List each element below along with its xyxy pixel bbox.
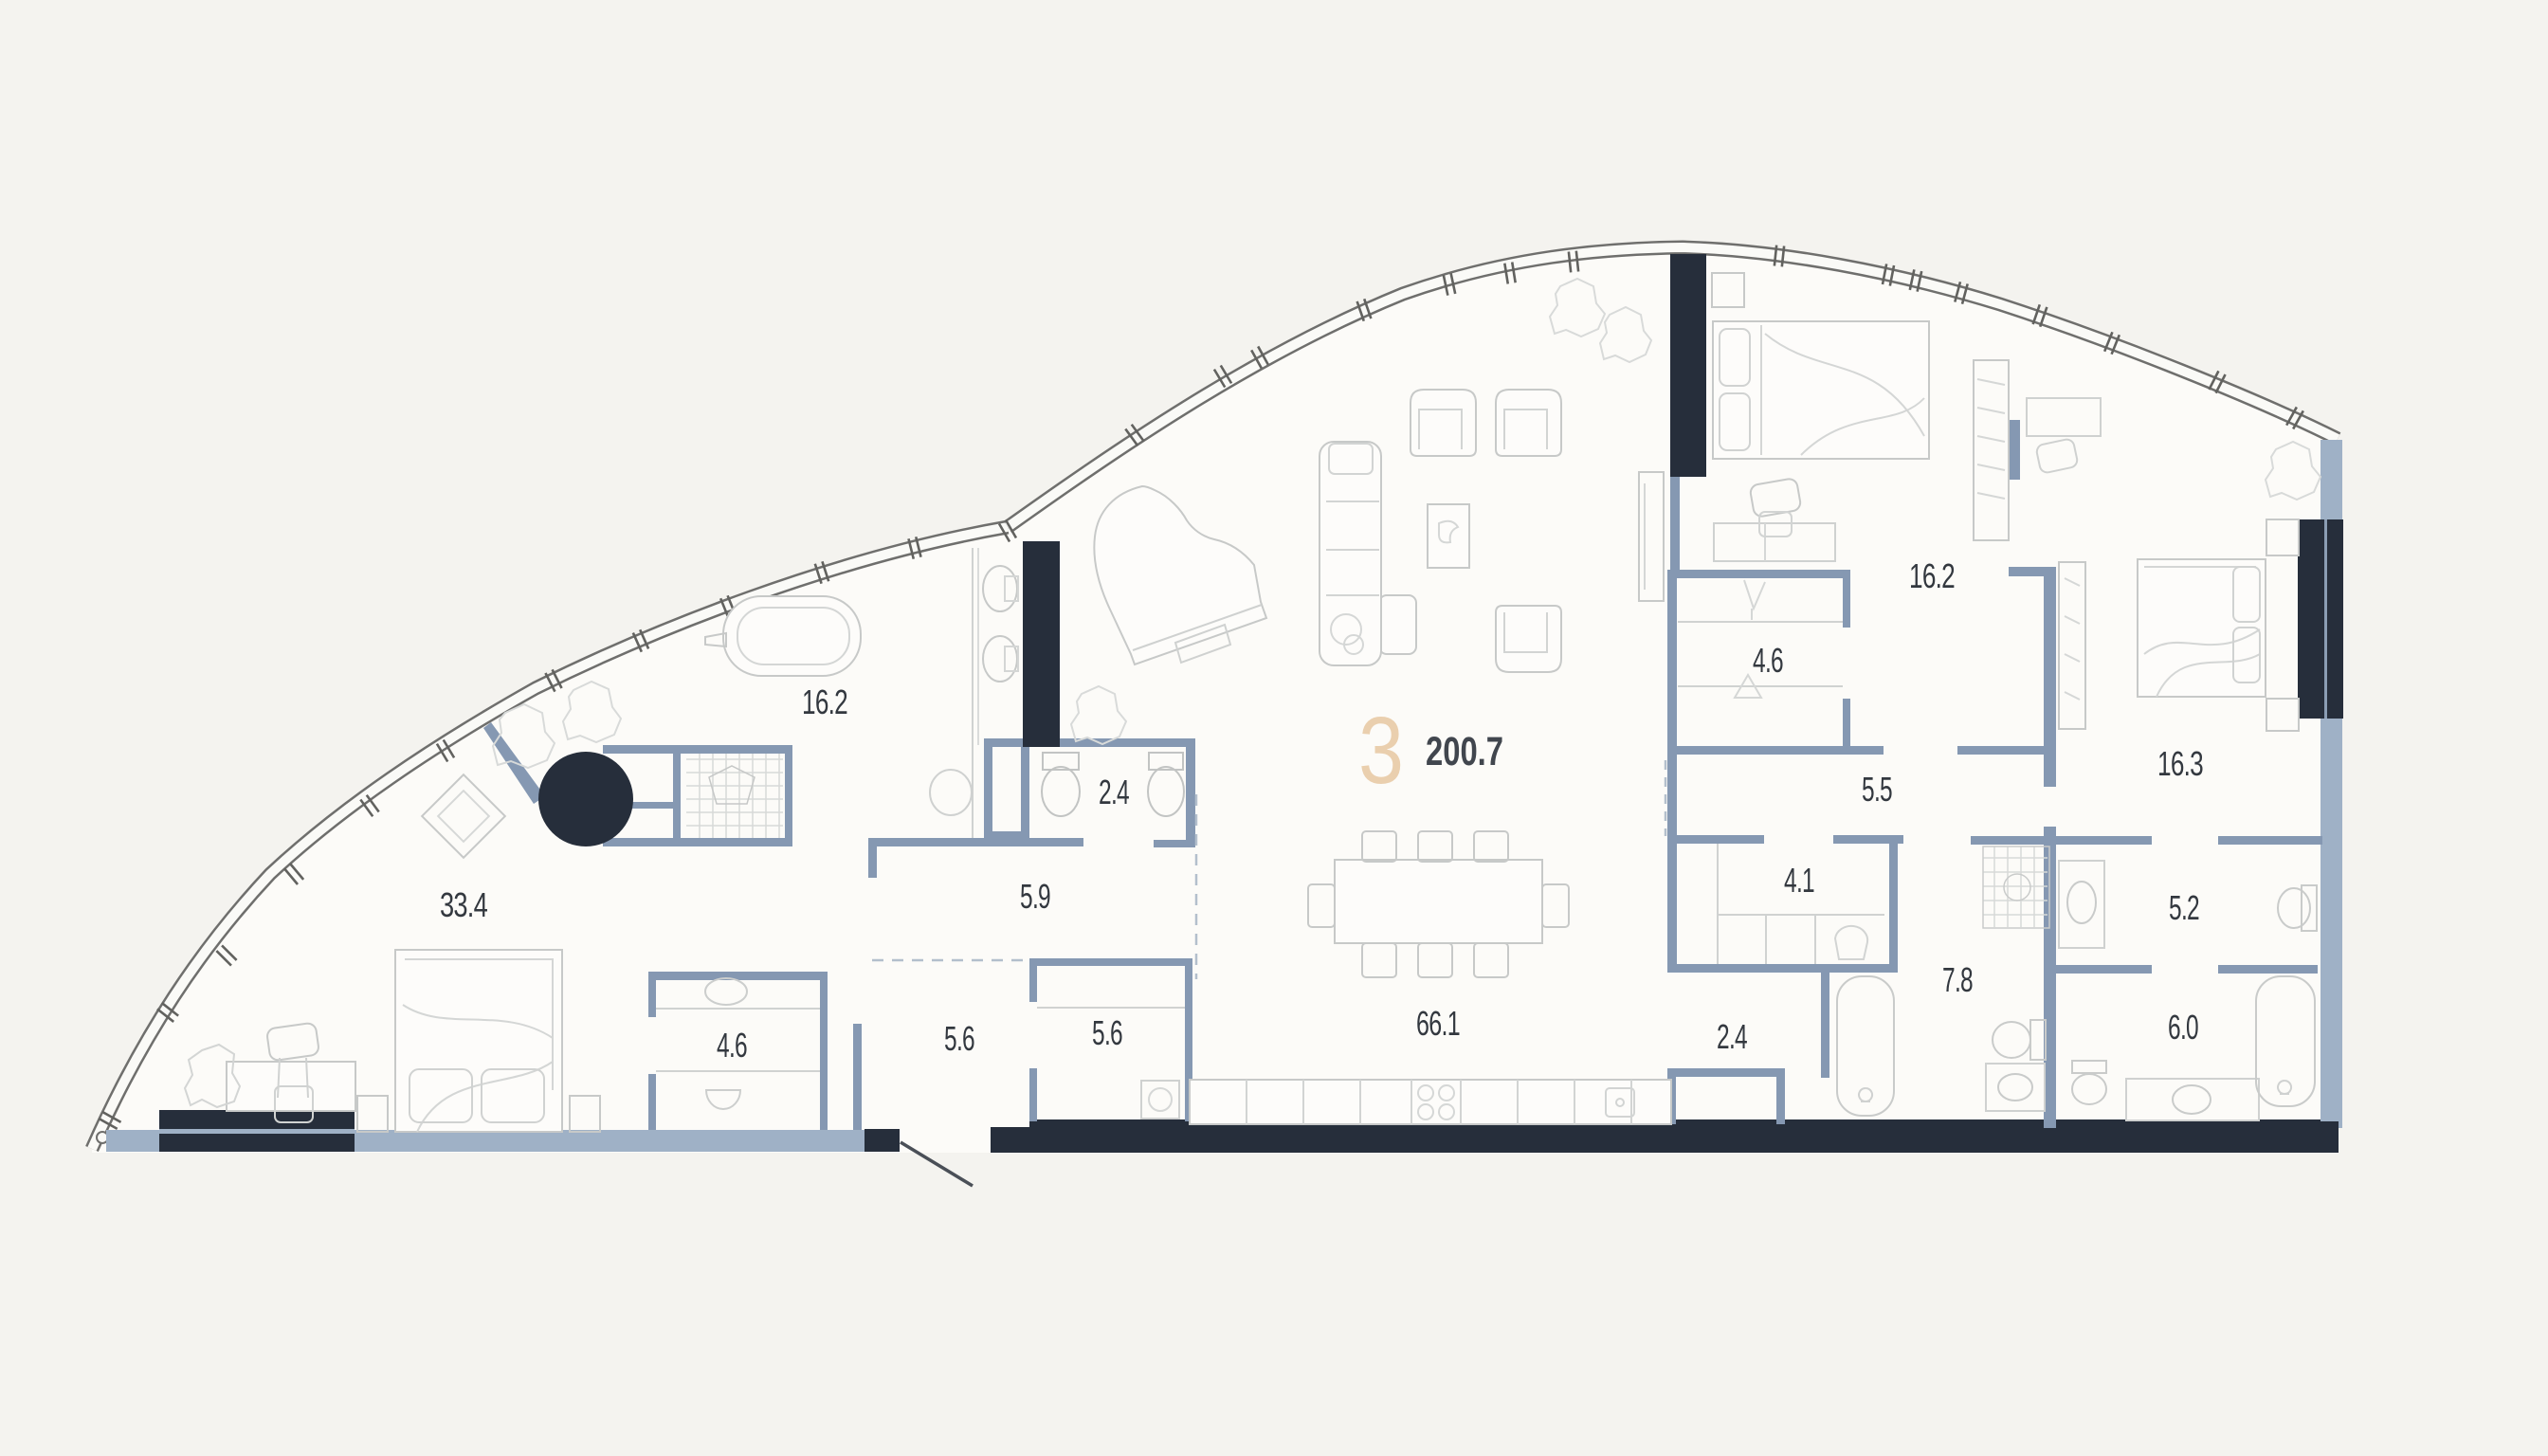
svg-text:5.2: 5.2 [2169,888,2199,927]
svg-text:16.2: 16.2 [1909,556,1955,595]
svg-text:3: 3 [1358,698,1404,804]
svg-text:16.2: 16.2 [802,682,847,721]
svg-text:16.3: 16.3 [2157,744,2203,783]
svg-text:5.6: 5.6 [1092,1013,1122,1052]
svg-text:5.5: 5.5 [1862,770,1892,809]
svg-text:7.8: 7.8 [1942,960,1973,999]
svg-text:4.6: 4.6 [717,1026,747,1065]
svg-text:5.9: 5.9 [1020,877,1050,916]
svg-text:33.4: 33.4 [440,885,487,924]
svg-text:200.7: 200.7 [1426,729,1503,774]
svg-text:4.1: 4.1 [1784,861,1814,900]
svg-text:2.4: 2.4 [1099,773,1129,811]
svg-text:2.4: 2.4 [1717,1017,1747,1056]
svg-text:66.1: 66.1 [1416,1004,1460,1043]
svg-text:5.6: 5.6 [944,1019,974,1058]
svg-text:4.6: 4.6 [1753,641,1783,680]
svg-text:6.0: 6.0 [2168,1008,2198,1046]
